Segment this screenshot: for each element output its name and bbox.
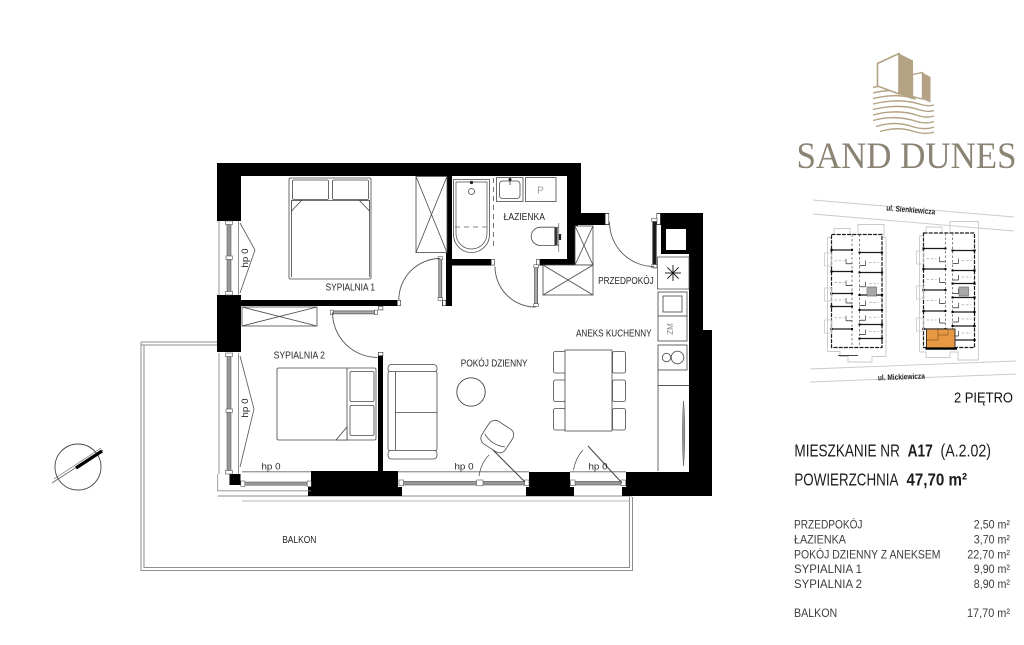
svg-text:MIESZKANIE NR: MIESZKANIE NR [794, 441, 900, 461]
svg-text:SYPIALNIA 1: SYPIALNIA 1 [326, 282, 376, 293]
svg-text:SYPIALNIA 2: SYPIALNIA 2 [794, 577, 862, 591]
svg-text:hp 0: hp 0 [262, 461, 281, 472]
svg-text:2,50 m²: 2,50 m² [974, 518, 1010, 532]
svg-text:SAND DUNES: SAND DUNES [797, 135, 1017, 176]
svg-text:PRZEDPOKÓJ: PRZEDPOKÓJ [794, 517, 863, 532]
svg-text:2 PIĘTRO: 2 PIĘTRO [954, 390, 1013, 406]
svg-text:ANEKS KUCHENNY: ANEKS KUCHENNY [576, 328, 652, 339]
svg-text:ul. Mickiewicza: ul. Mickiewicza [878, 372, 926, 383]
svg-text:(A.2.02): (A.2.02) [941, 441, 992, 461]
svg-text:ŁAZIENKA: ŁAZIENKA [504, 212, 545, 223]
svg-text:BALKON: BALKON [794, 606, 837, 620]
svg-text:POKÓJ DZIENNY: POKÓJ DZIENNY [461, 356, 528, 369]
svg-text:3,70 m²: 3,70 m² [974, 532, 1010, 546]
svg-text:P: P [537, 186, 544, 197]
svg-text:hp 0: hp 0 [240, 249, 251, 268]
svg-text:hp 0: hp 0 [455, 461, 474, 472]
svg-text:hp 0: hp 0 [589, 462, 608, 473]
svg-text:POWIERZCHNIA: POWIERZCHNIA [794, 470, 898, 490]
svg-text:8,90 m²: 8,90 m² [974, 577, 1010, 591]
svg-text:9,90 m²: 9,90 m² [974, 562, 1010, 576]
svg-text:A17: A17 [908, 441, 933, 461]
svg-text:22,70 m²: 22,70 m² [967, 547, 1010, 561]
svg-text:hp 0: hp 0 [240, 399, 251, 418]
svg-text:47,70 m²: 47,70 m² [907, 470, 968, 490]
svg-text:ZM: ZM [666, 323, 675, 335]
svg-text:ŁAZIENKA: ŁAZIENKA [794, 532, 846, 546]
svg-text:SYPIALNIA 2: SYPIALNIA 2 [274, 351, 326, 362]
svg-text:SYPIALNIA 1: SYPIALNIA 1 [794, 562, 862, 576]
svg-text:POKÓJ DZIENNY Z ANEKSEM: POKÓJ DZIENNY Z ANEKSEM [794, 546, 941, 561]
svg-text:BALKON: BALKON [282, 535, 316, 546]
svg-text:PRZEDPOKÓJ: PRZEDPOKÓJ [598, 274, 654, 287]
svg-text:17,70 m²: 17,70 m² [967, 606, 1010, 620]
